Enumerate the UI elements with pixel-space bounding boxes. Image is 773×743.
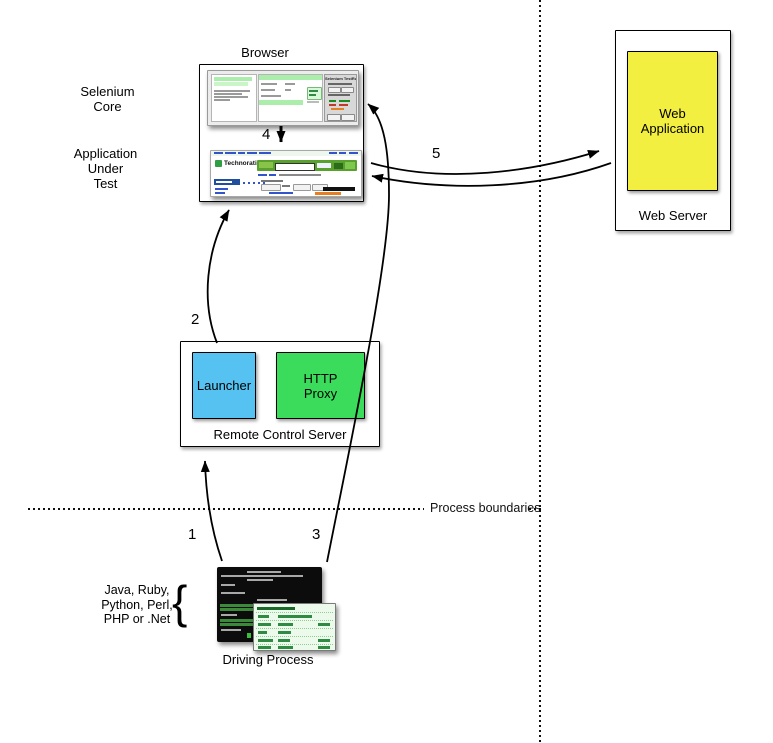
remote-control-server-label: Remote Control Server (181, 427, 379, 442)
testrunner-test-case-pane (258, 74, 323, 122)
test-results-table (253, 603, 336, 651)
languages-label: Java, Ruby, Python, Perl, PHP or .Net (93, 583, 181, 627)
process-boundary-vertical-line (539, 0, 541, 743)
technorati-screenshot: Technorati (210, 150, 362, 197)
arrow-1-driving-to-rcs (205, 461, 222, 561)
remote-control-server-box: Launcher HTTP Proxy Remote Control Serve… (180, 341, 380, 447)
testrunner-title: Selenium TestRunner (325, 76, 356, 81)
arrow-5-webserver-to-browser (372, 163, 611, 186)
step-1-label: 1 (188, 526, 196, 543)
technorati-search-button (334, 163, 343, 169)
step-4-label: 4 (262, 126, 270, 143)
technorati-logo-text: Technorati (224, 160, 257, 167)
selenium-core-label: Selenium Core (60, 84, 155, 114)
http-proxy-label: HTTP Proxy (304, 371, 338, 401)
testrunner-processing-indicator (307, 87, 322, 100)
technorati-logo-icon (215, 160, 222, 167)
arrow-2-rcs-to-browser (208, 210, 229, 343)
launcher-box: Launcher (192, 352, 256, 419)
testrunner-test-suite-pane (211, 74, 257, 122)
web-server-box: Web Application Web Server (615, 30, 731, 231)
terminal-cursor (247, 633, 251, 638)
technorati-links-bar (211, 151, 361, 156)
browser-box: Selenium TestRunner 4 (199, 64, 364, 202)
launcher-label: Launcher (197, 378, 251, 393)
selenium-rc-architecture-diagram: Process boundaries Selenium Core Applica… (0, 0, 773, 743)
web-application-label: Web Application (641, 106, 705, 136)
technorati-search-bar (257, 160, 357, 171)
process-boundaries-label: Process boundaries (430, 501, 540, 515)
languages-brace: { (172, 577, 187, 627)
web-server-label: Web Server (616, 208, 730, 223)
http-proxy-box: HTTP Proxy (276, 352, 365, 419)
technorati-search-input (275, 163, 315, 171)
step-2-label: 2 (191, 311, 199, 328)
arrow-5-browser-to-webserver (371, 151, 599, 174)
technorati-channels-tab (214, 179, 240, 185)
step-5-label: 5 (432, 145, 440, 162)
application-under-test-label: Application Under Test (58, 146, 153, 191)
browser-label: Browser (215, 45, 315, 60)
web-application-box: Web Application (627, 51, 718, 191)
step-3-label: 3 (312, 526, 320, 543)
process-boundary-horizontal-line (28, 508, 424, 510)
testrunner-control-pane: Selenium TestRunner (324, 74, 357, 122)
driving-process-label: Driving Process (213, 652, 323, 667)
selenium-testrunner-screenshot: Selenium TestRunner (207, 70, 359, 126)
